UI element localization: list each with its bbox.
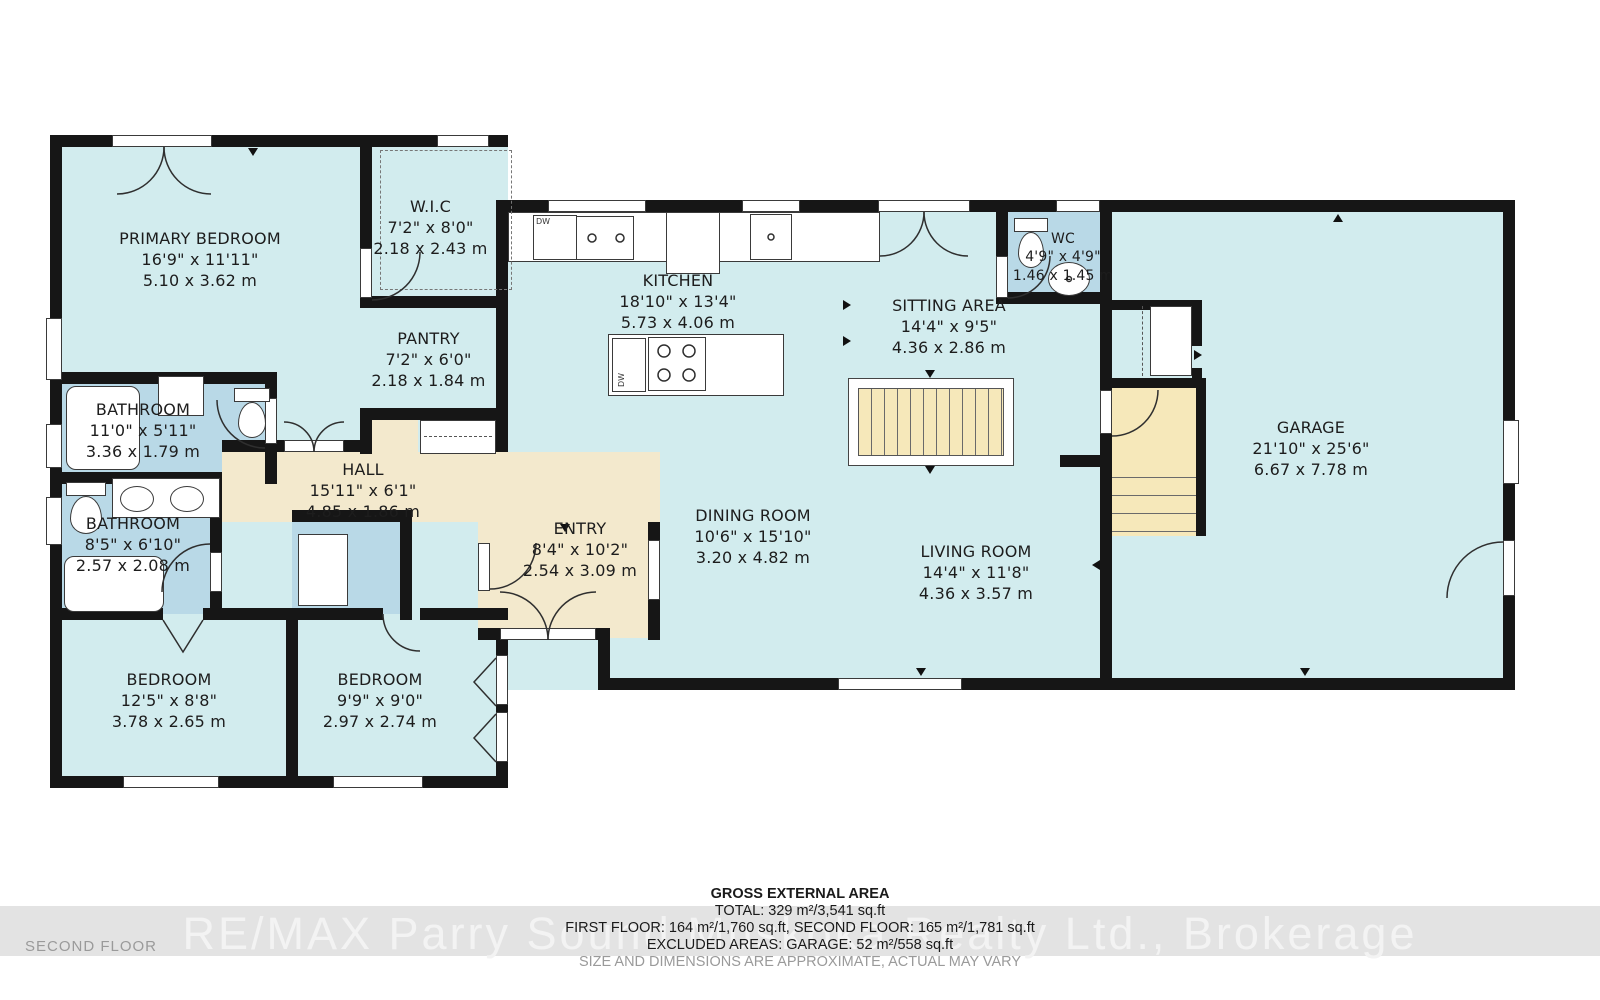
room-dim-imperial: 7'2" x 6'0"	[346, 349, 511, 370]
window	[437, 135, 489, 147]
room-label-sitting-area: SITTING AREA 14'4" x 9'5" 4.36 x 2.86 m	[839, 295, 1059, 358]
room-name: W.I.C	[348, 196, 513, 217]
room-label-bathroom1: BATHROOM 11'0" x 5'11" 3.36 x 1.79 m	[33, 399, 253, 462]
room-label-hall: HALL 15'11" x 6'1" 4.85 x 1.86 m	[253, 459, 473, 522]
room-name: PANTRY	[346, 328, 511, 349]
room-label-kitchen: KITCHEN 18'10" x 13'4" 5.73 x 4.06 m	[568, 270, 788, 333]
wall	[1100, 200, 1112, 390]
room-dim-metric: 3.20 x 4.82 m	[643, 547, 863, 568]
wall	[360, 408, 508, 420]
room-dim-imperial: 14'4" x 9'5"	[839, 316, 1059, 337]
area-excluded: EXCLUDED AREAS: GARAGE: 52 m²/558 sq.ft	[0, 937, 1600, 954]
room-label-bedroom1: BEDROOM 12'5" x 8'8" 3.78 x 2.65 m	[59, 669, 279, 732]
door-opening	[500, 628, 596, 640]
room-name: HALL	[253, 459, 473, 480]
room-name: LIVING ROOM	[866, 541, 1086, 562]
room-name: GARAGE	[1201, 417, 1421, 438]
room-dim-imperial: 21'10" x 25'6"	[1201, 438, 1421, 459]
stairs-arrow	[925, 466, 935, 474]
room-dim-metric: 4.36 x 3.57 m	[866, 583, 1086, 604]
closet-rail	[1142, 306, 1143, 376]
room-dim-metric: 3.36 x 1.79 m	[33, 441, 253, 462]
room-dim-metric: 1.46 x 1.45 m	[1000, 267, 1126, 285]
prep-sink	[750, 214, 792, 260]
room-name: PRIMARY BEDROOM	[90, 228, 310, 249]
window	[496, 712, 508, 762]
room-dim-imperial: 7'2" x 8'0"	[348, 217, 513, 238]
area-floors: FIRST FLOOR: 164 m²/1,760 sq.ft, SECOND …	[0, 920, 1600, 937]
door-opening	[1100, 390, 1112, 434]
room-dim-metric: 5.73 x 4.06 m	[568, 312, 788, 333]
room-label-garage: GARAGE 21'10" x 25'6" 6.67 x 7.78 m	[1201, 417, 1421, 480]
floor-label: SECOND FLOOR	[25, 938, 157, 955]
dishwasher-label: DW	[536, 217, 550, 226]
vanity-basin	[120, 486, 154, 512]
floor-plan: DW DW	[0, 0, 1600, 1000]
double-sink	[576, 216, 634, 260]
wall	[344, 440, 372, 452]
wall	[610, 678, 1515, 690]
bedroom2-storage	[298, 534, 348, 606]
room-label-living-room: LIVING ROOM 14'4" x 11'8" 4.36 x 3.57 m	[866, 541, 1086, 604]
room-dim-imperial: 11'0" x 5'11"	[33, 420, 253, 441]
room-name: WC	[1000, 230, 1126, 248]
opening-marker	[248, 148, 258, 156]
room-dim-imperial: 14'4" x 11'8"	[866, 562, 1086, 583]
room-dim-metric: 2.97 x 2.74 m	[270, 711, 490, 732]
island-dishwasher: DW	[612, 338, 646, 392]
wall	[598, 628, 610, 690]
room-name: SITTING AREA	[839, 295, 1059, 316]
stove	[648, 337, 706, 391]
area-total: TOTAL: 329 m²/3,541 sq.ft	[0, 903, 1600, 920]
wall	[50, 776, 508, 788]
room-dim-imperial: 16'9" x 11'11"	[90, 249, 310, 270]
room-label-pantry: PANTRY 7'2" x 6'0" 2.18 x 1.84 m	[346, 328, 511, 391]
toilet-tank	[66, 482, 106, 496]
room-dim-metric: 2.57 x 2.08 m	[23, 555, 243, 576]
room-label-bathroom2: BATHROOM 8'5" x 6'10" 2.57 x 2.08 m	[23, 513, 243, 576]
room-name: BEDROOM	[270, 669, 490, 690]
wall	[420, 608, 508, 620]
island-dishwasher-label: DW	[617, 373, 626, 387]
door-opening	[284, 440, 344, 452]
room-label-wc: WC 4'9" x 4'9" 1.46 x 1.45 m	[1000, 230, 1126, 285]
room-dim-imperial: 12'5" x 8'8"	[59, 690, 279, 711]
room-dim-metric: 2.18 x 1.84 m	[346, 370, 511, 391]
room-dim-imperial: 4'9" x 4'9"	[1000, 248, 1126, 266]
room-dim-imperial: 9'9" x 9'0"	[270, 690, 490, 711]
opening-marker	[916, 668, 926, 676]
room-name: BATHROOM	[23, 513, 243, 534]
window	[123, 776, 219, 788]
wall	[1192, 300, 1202, 346]
closet-door-marker	[1194, 350, 1202, 360]
room-name: DINING ROOM	[643, 505, 863, 526]
area-summary: GROSS EXTERNAL AREA TOTAL: 329 m²/3,541 …	[0, 886, 1600, 971]
room-dim-metric: 5.10 x 3.62 m	[90, 270, 310, 291]
dishwasher: DW	[533, 215, 577, 260]
room-label-dining-room: DINING ROOM 10'6" x 15'10" 3.20 x 4.82 m	[643, 505, 863, 568]
area-disclaimer: SIZE AND DIMENSIONS ARE APPROXIMATE, ACT…	[0, 954, 1600, 971]
garage-staircase-treads	[1112, 460, 1196, 536]
room-dim-metric: 4.36 x 2.86 m	[839, 337, 1059, 358]
room-dim-imperial: 8'5" x 6'10"	[23, 534, 243, 555]
window	[838, 678, 962, 690]
wall	[1112, 378, 1202, 388]
window	[548, 200, 646, 212]
window	[742, 200, 800, 212]
room-name: BEDROOM	[59, 669, 279, 690]
area-summary-title: GROSS EXTERNAL AREA	[0, 886, 1600, 903]
room-dim-imperial: 15'11" x 6'1"	[253, 480, 473, 501]
room-dim-metric: 3.78 x 2.65 m	[59, 711, 279, 732]
wall	[505, 200, 1515, 212]
garage-closet-shelf	[1150, 306, 1192, 376]
closet-rail	[424, 436, 492, 437]
room-name: BATHROOM	[33, 399, 253, 420]
window	[1056, 200, 1100, 212]
wall	[360, 296, 508, 308]
opening-marker	[1092, 560, 1100, 570]
window	[496, 655, 508, 705]
door-opening	[265, 398, 277, 444]
room-dim-metric: 6.67 x 7.78 m	[1201, 459, 1421, 480]
fridge	[666, 212, 720, 274]
stairs-arrow	[925, 370, 935, 378]
window	[333, 776, 423, 788]
room-dim-imperial: 10'6" x 15'10"	[643, 526, 863, 547]
wall	[1100, 432, 1112, 690]
pantry-closet-shelf	[420, 420, 496, 454]
vanity-basin	[170, 486, 204, 512]
window	[46, 318, 62, 380]
central-staircase-treads	[858, 388, 1004, 456]
opening-marker	[1300, 668, 1310, 676]
door-opening	[1503, 540, 1515, 596]
room-name: KITCHEN	[568, 270, 788, 291]
room-dim-imperial: 18'10" x 13'4"	[568, 291, 788, 312]
french-door-opening	[878, 200, 970, 212]
wall	[400, 510, 412, 620]
opening-marker	[1333, 214, 1343, 222]
room-label-wic: W.I.C 7'2" x 8'0" 2.18 x 2.43 m	[348, 196, 513, 259]
window	[1503, 420, 1519, 484]
closet-door-opening	[112, 135, 212, 147]
room-label-primary-bedroom: PRIMARY BEDROOM 16'9" x 11'11" 5.10 x 3.…	[90, 228, 310, 291]
room-dim-metric: 2.18 x 2.43 m	[348, 238, 513, 259]
room-label-bedroom2: BEDROOM 9'9" x 9'0" 2.97 x 2.74 m	[270, 669, 490, 732]
room-dim-metric: 4.85 x 1.86 m	[253, 501, 473, 522]
wall	[1060, 455, 1112, 467]
